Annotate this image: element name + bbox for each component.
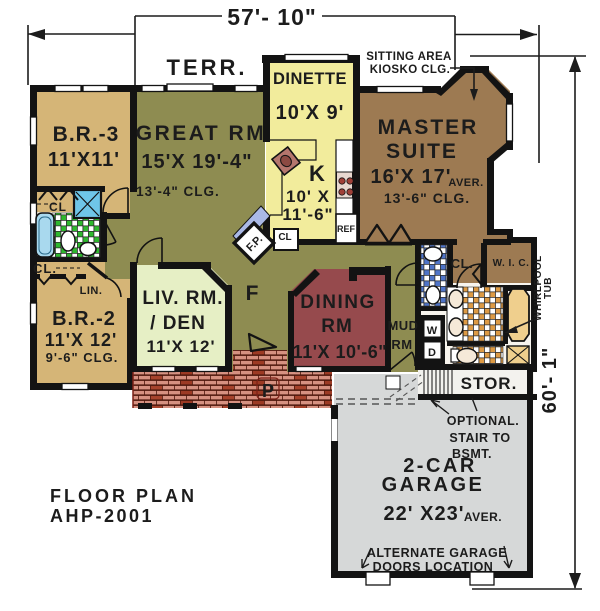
svg-text:STOR.: STOR.: [461, 374, 518, 393]
svg-text:TUB: TUB: [543, 277, 554, 299]
svg-text:9'-6" CLG.: 9'-6" CLG.: [46, 350, 119, 365]
svg-text:AHP-2001: AHP-2001: [50, 506, 154, 526]
svg-text:11'X 12': 11'X 12': [146, 337, 215, 356]
svg-text:CL.: CL.: [451, 256, 473, 271]
svg-text:STAIR TO: STAIR TO: [449, 431, 510, 445]
svg-text:LIV. RM.: LIV. RM.: [142, 288, 223, 309]
svg-text:13'-6" CLG.: 13'-6" CLG.: [384, 190, 470, 206]
svg-text:FLOOR PLAN: FLOOR PLAN: [50, 486, 197, 506]
svg-text:CL: CL: [49, 200, 67, 214]
svg-text:11'X 10'-6": 11'X 10'-6": [293, 342, 388, 362]
svg-text:F: F: [246, 282, 259, 305]
svg-text:MASTER: MASTER: [378, 116, 479, 139]
svg-text:OPTIONAL.: OPTIONAL.: [447, 414, 520, 428]
svg-text:SUITE: SUITE: [386, 140, 458, 163]
svg-text:22' X23': 22' X23': [384, 503, 465, 525]
svg-text:/ DEN: / DEN: [150, 313, 206, 334]
svg-text:13'-4" CLG.: 13'-4" CLG.: [136, 184, 220, 199]
svg-text:AVER.: AVER.: [448, 177, 483, 189]
svg-text:AVER.: AVER.: [464, 510, 502, 524]
svg-text:GARAGE: GARAGE: [382, 474, 485, 496]
svg-text:60'- 1": 60'- 1": [539, 347, 561, 414]
svg-text:D: D: [428, 347, 436, 359]
svg-text:DINETTE: DINETTE: [273, 70, 347, 88]
svg-text:11'X11': 11'X11': [48, 149, 120, 171]
svg-text:TERR.: TERR.: [167, 55, 248, 80]
svg-text:CL.: CL.: [33, 261, 57, 276]
svg-text:B.R.-2: B.R.-2: [52, 308, 116, 330]
svg-text:W. I. C.: W. I. C.: [493, 258, 530, 269]
svg-text:16'X 17': 16'X 17': [371, 166, 452, 188]
svg-text:P: P: [262, 381, 274, 401]
svg-text:K: K: [309, 161, 325, 186]
svg-text:SITTING AREA: SITTING AREA: [366, 51, 452, 63]
svg-text:GREAT RM: GREAT RM: [136, 122, 266, 145]
svg-text:LIN.: LIN.: [80, 285, 103, 297]
svg-text:KIOSKO CLG.: KIOSKO CLG.: [370, 64, 450, 76]
svg-text:CL: CL: [278, 232, 291, 243]
svg-text:RM: RM: [321, 316, 353, 337]
svg-text:ALTERNATE GARAGE: ALTERNATE GARAGE: [367, 546, 507, 560]
svg-text:10'X 9': 10'X 9': [276, 102, 345, 124]
svg-text:11'X 12': 11'X 12': [45, 330, 118, 350]
svg-text:B.R.-3: B.R.-3: [53, 123, 120, 146]
svg-text:MUD: MUD: [387, 318, 418, 333]
svg-text:10' X: 10' X: [286, 187, 330, 206]
svg-text:15'X 19'-4": 15'X 19'-4": [141, 151, 252, 173]
svg-text:REF: REF: [337, 224, 356, 234]
svg-text:DOORS LOCATION: DOORS LOCATION: [373, 560, 494, 574]
svg-text:W: W: [427, 325, 438, 337]
svg-text:57'- 10": 57'- 10": [227, 4, 317, 30]
svg-text:DINING: DINING: [300, 292, 376, 313]
svg-text:RM: RM: [391, 337, 412, 352]
svg-text:11'-6": 11'-6": [282, 205, 333, 224]
